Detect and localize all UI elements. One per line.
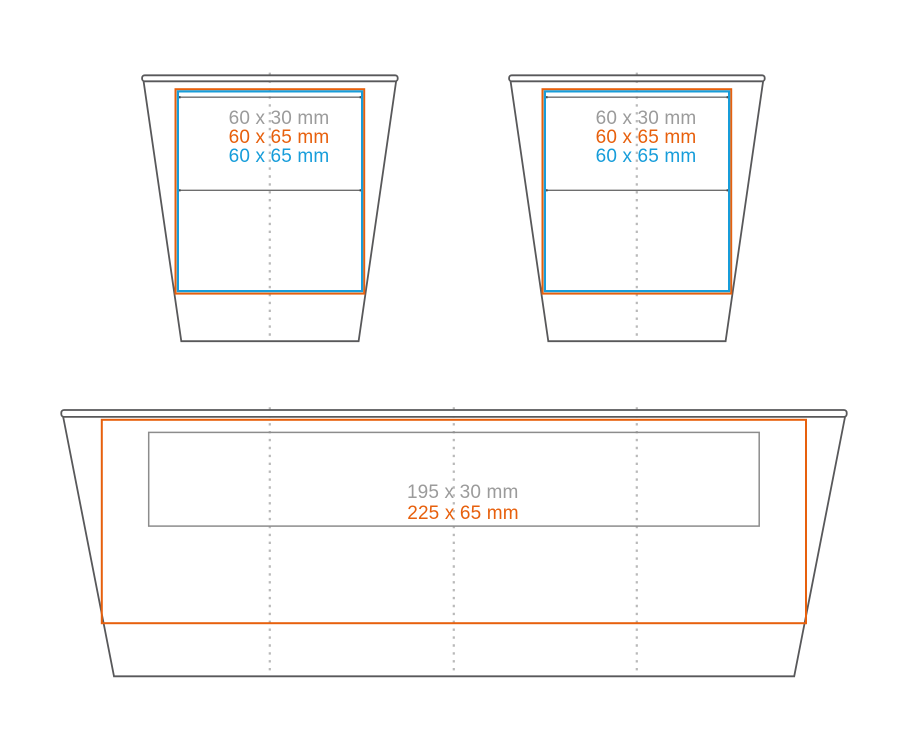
- svg-text:60 x 65 mm: 60 x 65 mm: [229, 127, 330, 148]
- svg-text:195 x 30 mm: 195 x 30 mm: [407, 482, 518, 503]
- svg-text:225 x 65 mm: 225 x 65 mm: [407, 503, 518, 524]
- svg-text:60 x 65 mm: 60 x 65 mm: [596, 127, 697, 148]
- svg-text:60 x 65 mm: 60 x 65 mm: [596, 146, 697, 167]
- svg-text:60 x 65 mm: 60 x 65 mm: [229, 146, 330, 167]
